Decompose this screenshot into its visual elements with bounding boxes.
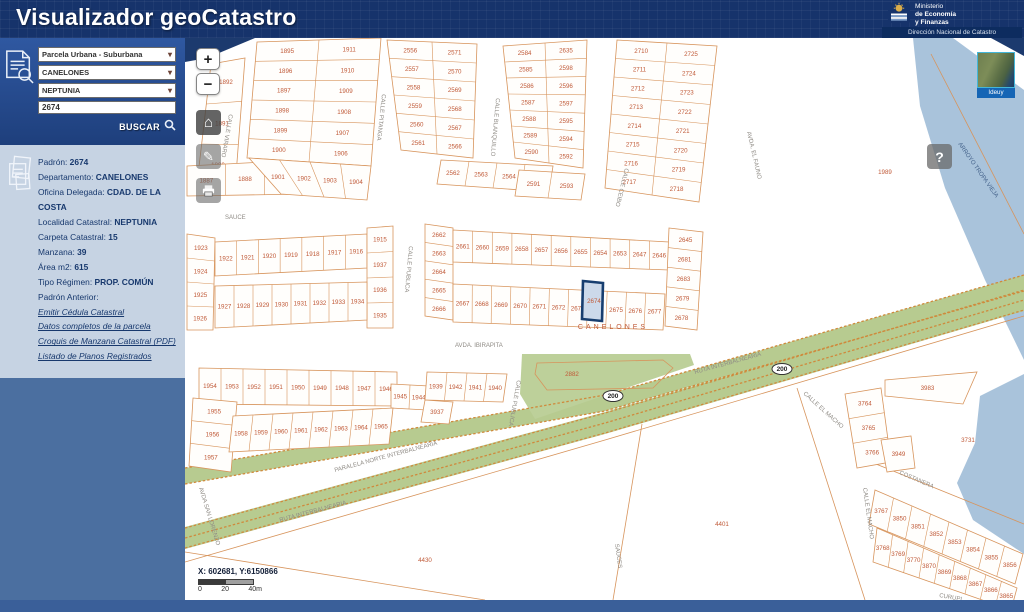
info-link[interactable]: Croquis de Manzana Catastral (PDF) — [38, 334, 179, 349]
map-canvas[interactable]: 1892189118901887188818891895191118961910… — [185, 38, 1024, 600]
highlighted-parcel-label: 2674 — [587, 298, 601, 305]
parcel-label: 1958 — [234, 431, 248, 438]
parcel-label: 2571 — [448, 49, 462, 56]
parcel-label: 1910 — [341, 67, 355, 74]
parcel-label: 2678 — [675, 315, 689, 322]
parcel-label: 1959 — [254, 430, 268, 437]
chevron-down-icon: ▾ — [168, 51, 172, 59]
parcel-label: 2667 — [456, 300, 470, 307]
parcel-label: 2683 — [677, 276, 691, 283]
info-field: Oficina Delegada: CDAD. DE LA COSTA — [38, 185, 179, 215]
parcel-label: 1930 — [275, 301, 289, 308]
parcel-label: 2668 — [475, 301, 489, 308]
parcel-label: 1915 — [373, 237, 387, 244]
parcel-label: 1911 — [343, 46, 357, 53]
info-field: Área m2: 615 — [38, 260, 179, 275]
parcel-label: 2660 — [476, 244, 490, 251]
parcel-label: 3867 — [969, 581, 983, 588]
footer-bar — [0, 600, 1024, 612]
parcel-label: 1956 — [206, 432, 220, 439]
parcel-label: 2672 — [552, 305, 566, 312]
parcel-label: 2559 — [408, 103, 422, 110]
parcel-label: 3770 — [907, 557, 921, 564]
parcel-label: 2563 — [474, 172, 488, 179]
home-button[interactable]: ⌂ — [196, 110, 221, 135]
parcel-label: 1929 — [256, 302, 270, 309]
parcel-label: 3767 — [874, 508, 888, 515]
parcel-label: 1960 — [274, 429, 288, 436]
parcel-label: 2681 — [678, 256, 692, 263]
parcel-block — [387, 40, 477, 158]
parcel-label: 1916 — [349, 249, 363, 256]
parcel-label: 3765 — [862, 425, 876, 432]
parcel-label: 2656 — [554, 248, 568, 255]
documents-icon — [5, 155, 35, 198]
parcel-label: 1964 — [354, 425, 368, 432]
parcel-label: 2723 — [680, 90, 694, 97]
street-label: AVDA. IBIRAPITA — [455, 343, 503, 349]
parcel-label: 2714 — [628, 123, 642, 130]
printer-icon — [201, 183, 216, 198]
parcel-label: 2653 — [613, 251, 627, 258]
parcel-label: 1941 — [468, 384, 482, 391]
parcel-label: 2598 — [559, 65, 573, 72]
parcel-label: 2589 — [523, 133, 537, 140]
scale-tick: 0 — [198, 586, 202, 593]
scale-bar: 0 20 40m — [198, 579, 262, 593]
parcel-label: 1919 — [284, 252, 298, 259]
parcel-label: 2713 — [629, 104, 643, 111]
zoom-controls: + − — [196, 48, 220, 98]
parcel-label: 2646 — [652, 253, 666, 260]
parcel-label: 3731 — [961, 437, 975, 444]
scale-tick: 20 — [221, 586, 229, 593]
parcel-label: 2556 — [403, 47, 417, 54]
direccion-catastro-bar: Dirección Nacional de Catastro — [882, 27, 1022, 38]
parcel-label: 1932 — [313, 300, 327, 307]
parcel-label: 1944 — [412, 395, 426, 402]
parcel-label: 2719 — [672, 167, 686, 174]
parcel-label: 1904 — [349, 179, 363, 186]
parcel-label: 2592 — [559, 154, 573, 161]
parcel-label: 1953 — [225, 384, 239, 391]
parcel-label: 2568 — [448, 106, 462, 113]
parcel-label: 2595 — [559, 118, 573, 125]
padron-input[interactable] — [38, 101, 176, 114]
parcel-label: 1902 — [297, 176, 311, 183]
parcel-label: 3768 — [876, 545, 890, 552]
parcel-label: 1934 — [351, 298, 365, 305]
parcel-label: 2593 — [560, 183, 574, 190]
chevron-down-icon: ▾ — [168, 69, 172, 77]
parcel-label: 2720 — [674, 147, 688, 154]
gov-logo-block: Ministerio de Economía y Finanzas Direcc… — [882, 0, 1022, 38]
parcel-label: 2647 — [633, 252, 647, 259]
map-area[interactable]: 1892189118901887188818891895191118961910… — [185, 38, 1024, 600]
parcel-label: 2661 — [456, 243, 470, 250]
parcel-label: 3769 — [891, 551, 905, 558]
buscar-button[interactable]: BUSCAR — [119, 122, 160, 132]
parcel-label: 1906 — [334, 151, 348, 158]
parcel-label: 1923 — [194, 245, 208, 252]
scale-tick: 40m — [248, 586, 262, 593]
parcel-label: 1899 — [274, 127, 288, 134]
parcel-label: 2654 — [593, 250, 607, 257]
parcel-label: 3937 — [430, 409, 444, 416]
parcel-label: 3866 — [984, 587, 998, 594]
parcel-label: 3869 — [938, 569, 952, 576]
parcel-label: 2586 — [520, 83, 534, 90]
parcel-label: 1903 — [323, 177, 337, 184]
parcel-label: 2724 — [682, 70, 696, 77]
parcel-label: 1942 — [449, 384, 463, 391]
parcel-label: 2665 — [432, 287, 446, 294]
parcel-label: 2882 — [565, 371, 579, 378]
parcel-label: 1895 — [280, 48, 294, 55]
parcel-label: 3764 — [858, 400, 872, 407]
uruguay-emblem-icon — [888, 2, 910, 29]
parcel-label: 1950 — [291, 385, 305, 392]
parcel-label: 2657 — [534, 247, 548, 254]
info-field: Padrón Anterior: — [38, 290, 179, 305]
parcel-label: 1907 — [336, 130, 350, 137]
zoom-out-button[interactable]: − — [196, 73, 220, 95]
info-field: Padrón: 2674 — [38, 155, 179, 170]
parcel-label: 1939 — [429, 383, 443, 390]
info-fields: Padrón: 2674Departamento: CANELONESOfici… — [38, 155, 179, 364]
parcel-label: 2659 — [495, 245, 509, 252]
parcel-label: 1922 — [219, 255, 233, 262]
parcel-label: 2560 — [410, 121, 424, 128]
parcel-label: 2564 — [502, 173, 516, 180]
parcel-label: 2711 — [633, 67, 647, 74]
parcel-label: 3855 — [985, 554, 999, 561]
select-departamento[interactable]: CANELONES ▾ — [38, 65, 176, 80]
locality-label: CANELONES — [578, 324, 648, 331]
info-field: Localidad Catastral: NEPTUNIA — [38, 215, 179, 230]
parcel-label: 3856 — [1003, 562, 1017, 569]
parcel-label: 3949 — [892, 451, 906, 458]
parcel-label: 2588 — [522, 116, 536, 123]
parcel-label: 2645 — [679, 237, 693, 244]
parcel-label: 2670 — [513, 303, 527, 310]
parcel-label: 2591 — [527, 181, 541, 188]
parcel-label: 1928 — [237, 303, 251, 310]
select-localidad[interactable]: NEPTUNIA ▾ — [38, 83, 176, 98]
parcel-label: 3870 — [922, 563, 936, 570]
parcel-label: 1901 — [271, 174, 285, 181]
parcel-label: 1926 — [193, 315, 207, 322]
scale-segment — [199, 580, 226, 584]
parcel-label: 2569 — [448, 87, 462, 94]
parcel-label: 1921 — [241, 254, 255, 261]
parcel-label: 2666 — [432, 306, 446, 313]
parcel-label: 1920 — [262, 253, 276, 260]
help-button[interactable]: ? — [927, 144, 952, 169]
parcel-label: 2671 — [532, 304, 546, 311]
ministry-name: Ministerio de Economía y Finanzas — [915, 3, 956, 26]
parcel-label: 2655 — [574, 249, 588, 256]
parcel-label: 1940 — [488, 385, 502, 392]
parcel-label: 3854 — [966, 547, 980, 554]
parcel-label: 2570 — [448, 68, 462, 75]
parcel-label: 2567 — [448, 125, 462, 132]
parcel-label: 3766 — [865, 450, 879, 457]
parcel-label: 1900 — [272, 147, 286, 154]
parcel-label: 2679 — [676, 296, 690, 303]
parcel-label: 1947 — [357, 386, 371, 393]
print-button[interactable] — [196, 178, 221, 203]
parcel-label: 2675 — [609, 307, 623, 314]
parcel-label: 1957 — [204, 455, 218, 462]
parcel-label: 1954 — [203, 383, 217, 390]
parcel-label: 2712 — [631, 85, 645, 92]
parcel-label: 1937 — [373, 262, 387, 269]
select-tipo-parcela-value: Parcela Urbana - Suburbana — [42, 50, 142, 59]
parcel-label: 1949 — [313, 385, 327, 392]
parcel-label: 1935 — [373, 312, 387, 319]
parcel-label: 2662 — [432, 232, 446, 239]
info-field: Departamento: CANELONES — [38, 170, 179, 185]
parcel-label: 1951 — [269, 384, 283, 391]
parcel-label: 1933 — [332, 299, 346, 306]
parcel-label: 2587 — [521, 100, 535, 107]
parcel-label: 1918 — [306, 251, 320, 258]
app-title: Visualizador geoCatastro — [16, 4, 296, 31]
zoom-in-button[interactable]: + — [196, 48, 220, 70]
measure-tool-button[interactable]: ✎ — [196, 144, 221, 169]
sidebar: Parcela Urbana - Suburbana ▾ CANELONES ▾… — [0, 38, 185, 612]
parcel-label: 1897 — [277, 88, 291, 95]
parcel-label: 2669 — [494, 302, 508, 309]
parcel-label: 2718 — [670, 186, 684, 193]
overview-map[interactable]: Ideuy — [977, 52, 1015, 98]
parcel-label: 2716 — [624, 160, 638, 167]
parcel-label: 2710 — [634, 48, 648, 55]
header: Visualizador geoCatastro — [0, 0, 1024, 38]
select-localidad-value: NEPTUNIA — [42, 86, 80, 95]
parcel-label: 1952 — [247, 384, 261, 391]
parcel-label: 2561 — [411, 140, 425, 147]
street-label: SAUCE — [225, 215, 246, 221]
info-link[interactable]: Listado de Planos Registrados — [38, 349, 179, 364]
parcel-label: 3851 — [911, 523, 925, 530]
parcel-label: 1989 — [878, 169, 892, 176]
parcel-label: 1892 — [219, 79, 233, 86]
route-shield-number: 200 — [608, 393, 619, 400]
info-link[interactable]: Emitir Cédula Catastral — [38, 305, 179, 320]
parcel-label: 1924 — [194, 268, 208, 275]
coordinates-readout: X: 602681, Y:6150866 — [198, 567, 278, 576]
parcel-label: 2562 — [446, 170, 460, 177]
parcel-label: 1917 — [328, 250, 342, 257]
parcel-label: 1908 — [337, 109, 351, 116]
parcel-label: 3852 — [929, 531, 943, 538]
document-search-icon — [4, 49, 34, 90]
parcel-label: 2585 — [519, 66, 533, 73]
parcel-label: 2594 — [559, 136, 573, 143]
parcel-label: 1936 — [373, 287, 387, 294]
info-field: Carpeta Catastral: 15 — [38, 230, 179, 245]
parcel-label: 1948 — [335, 385, 349, 392]
parcel-label: 2597 — [559, 101, 573, 108]
parcel-label: 1955 — [207, 409, 221, 416]
overview-label: Ideuy — [977, 88, 1015, 98]
parcel-label: 2566 — [448, 144, 462, 151]
parcel-label: 2722 — [678, 109, 692, 116]
parcel-label: 1896 — [279, 68, 293, 75]
parcel-info-panel: Padrón: 2674Departamento: CANELONESOfici… — [0, 145, 185, 378]
parcel-label: 2721 — [676, 128, 690, 135]
parcel-label: 2596 — [559, 83, 573, 90]
parcel-label: 1909 — [339, 88, 353, 95]
parcel-label: 1927 — [218, 304, 232, 311]
parcel-label: 1925 — [193, 292, 207, 299]
parcel-label: 2584 — [518, 50, 532, 57]
parcel-label: 1965 — [374, 424, 388, 431]
scale-segment — [226, 580, 253, 584]
app-root: Visualizador geoCatastro — [0, 0, 1024, 612]
info-field: Tipo Régimen: PROP. COMÚN — [38, 275, 179, 290]
parcel-label: 1931 — [294, 301, 308, 308]
route-shield-number: 200 — [777, 366, 788, 373]
parcel-label: 3868 — [953, 575, 967, 582]
parcel-label: 2557 — [405, 66, 419, 73]
info-link[interactable]: Datos completos de la parcela — [38, 319, 179, 334]
parcel-label: 2715 — [626, 142, 640, 149]
overview-thumbnail[interactable] — [977, 52, 1015, 88]
parcel-label: 1962 — [314, 427, 328, 434]
parcel-label: 2558 — [407, 84, 421, 91]
select-tipo-parcela[interactable]: Parcela Urbana - Suburbana ▾ — [38, 47, 176, 62]
parcel-label: 3983 — [921, 385, 935, 392]
parcel-label: 1945 — [393, 394, 407, 401]
parcel-label: 4430 — [418, 557, 432, 564]
parcel-label: 3853 — [948, 539, 962, 546]
search-panel: Parcela Urbana - Suburbana ▾ CANELONES ▾… — [0, 38, 185, 145]
parcel-label: 2664 — [432, 269, 446, 276]
parcel-label: 2658 — [515, 246, 529, 253]
chevron-down-icon: ▾ — [168, 87, 172, 95]
parcel-label: 1963 — [334, 426, 348, 433]
parcel-label: 3865 — [999, 593, 1013, 600]
search-icon[interactable] — [164, 118, 176, 136]
parcel-label: 1961 — [294, 428, 308, 435]
info-field: Manzana: 39 — [38, 245, 179, 260]
select-departamento-value: CANELONES — [42, 68, 89, 77]
parcel-label: 1898 — [275, 107, 289, 114]
parcel-label: 2676 — [628, 308, 642, 315]
parcel-label: 2725 — [684, 51, 698, 58]
parcel-label: 2635 — [559, 47, 573, 54]
parcel-label: 3850 — [893, 516, 907, 523]
parcel-label: 1888 — [238, 176, 252, 183]
parcel-label: 2590 — [525, 149, 539, 156]
parcel-label: 4401 — [715, 521, 729, 528]
parcel-label: 2677 — [648, 309, 662, 316]
parcel-label: 2663 — [432, 251, 446, 258]
